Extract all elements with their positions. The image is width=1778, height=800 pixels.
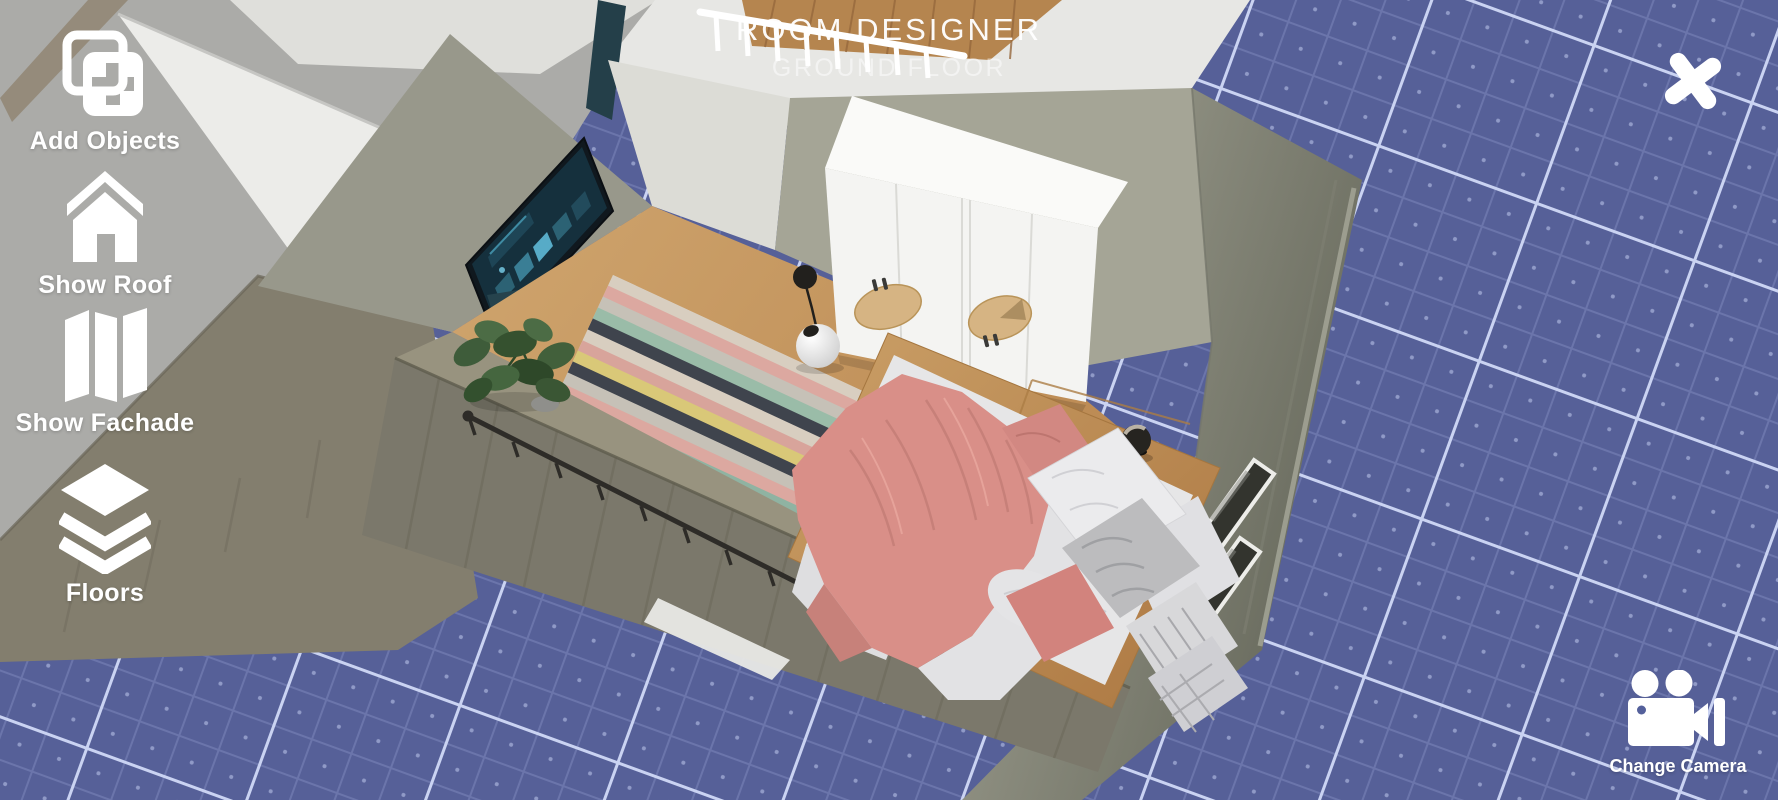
left-toolbar: Add Objects Show Roof Show Fachade: [0, 0, 210, 800]
show-roof-button[interactable]: Show Roof: [0, 170, 210, 300]
video-camera-icon: [1628, 670, 1728, 750]
floors-label: Floors: [0, 579, 210, 608]
add-objects-label: Add Objects: [0, 127, 210, 156]
folding-screen-icon: [59, 306, 151, 404]
close-icon: [1658, 46, 1728, 116]
floors-button[interactable]: Floors: [0, 462, 210, 608]
add-objects-button[interactable]: Add Objects: [0, 30, 210, 156]
add-objects-icon: [59, 30, 151, 122]
layers-icon: [59, 462, 151, 574]
show-fachade-label: Show Fachade: [0, 409, 210, 438]
change-camera-label: Change Camera: [1608, 756, 1748, 777]
room-designer-screen: ROOM DESIGNER GROUND FLOOR Add Objects S…: [0, 0, 1778, 800]
close-button[interactable]: [1658, 46, 1728, 116]
show-roof-label: Show Roof: [0, 271, 210, 300]
change-camera-button[interactable]: Change Camera: [1608, 670, 1748, 777]
show-fachade-button[interactable]: Show Fachade: [0, 306, 210, 438]
scene-3d-view[interactable]: [0, 0, 1778, 800]
house-icon: [59, 170, 151, 266]
